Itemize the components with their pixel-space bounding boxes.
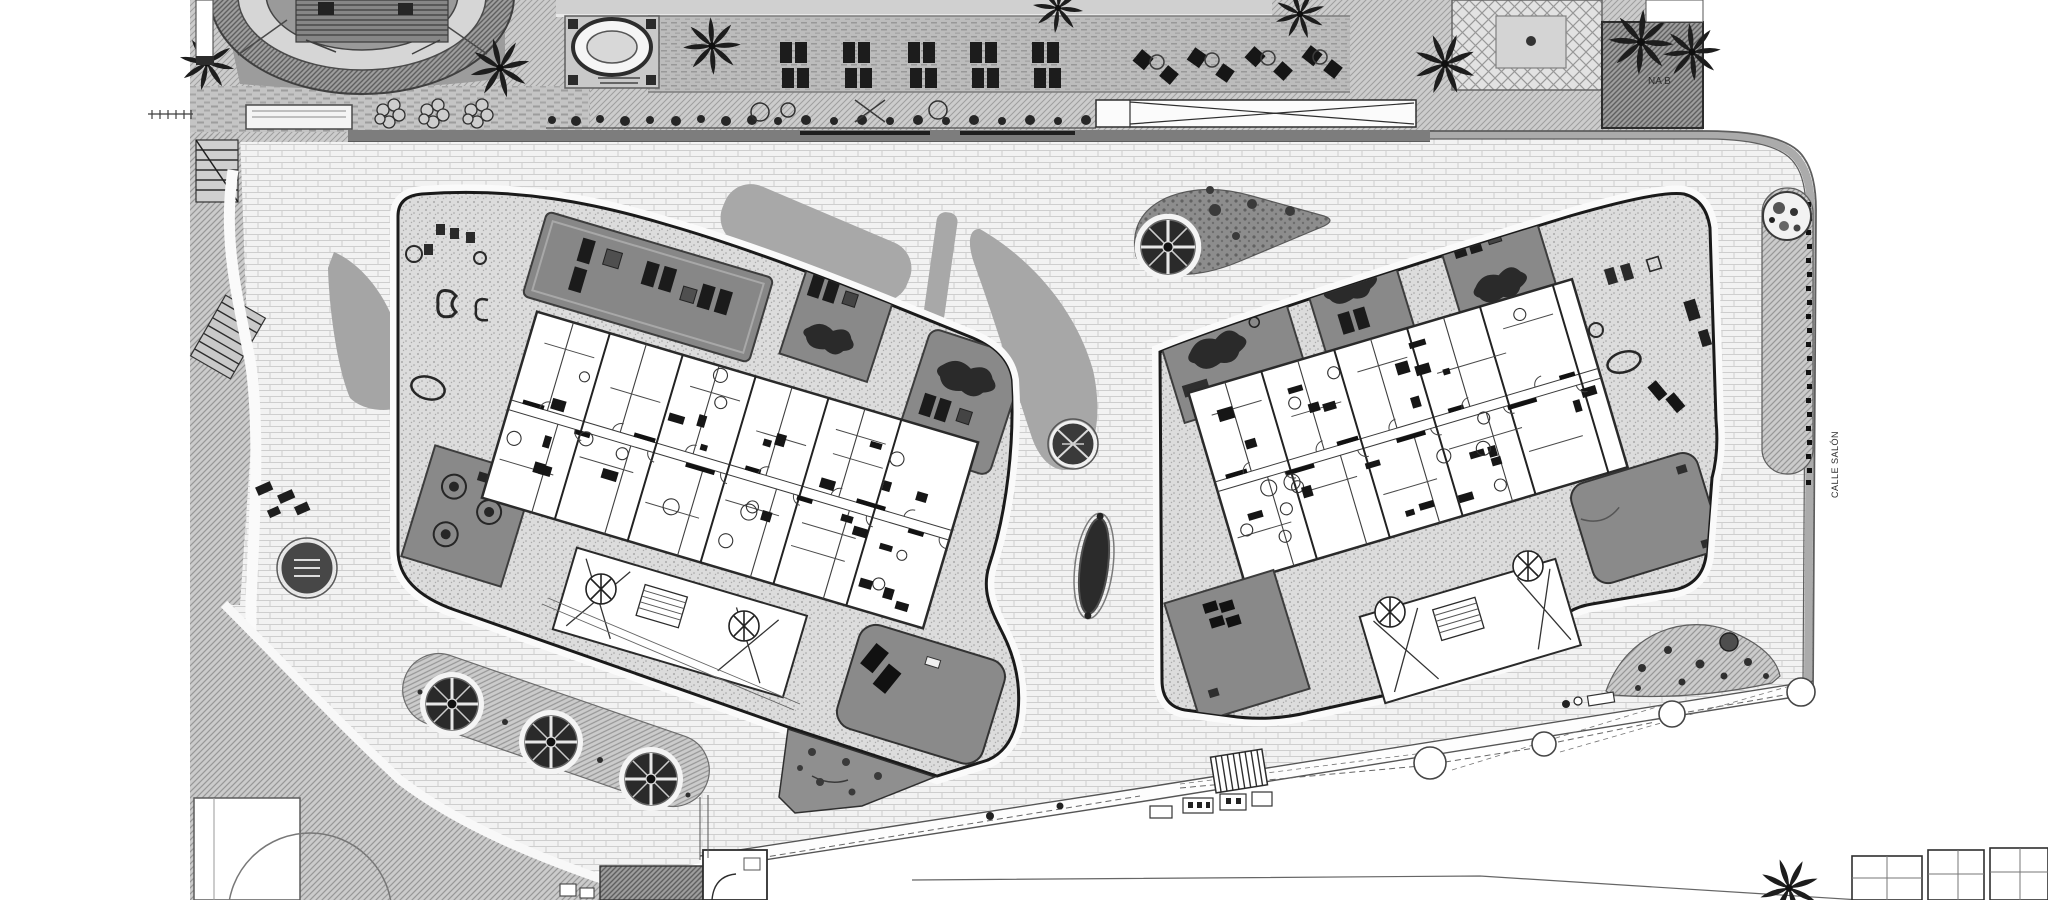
- svg-text:NA B: NA B: [1648, 76, 1671, 87]
- svg-text:CALLE SALÓN: CALLE SALÓN: [1830, 431, 1840, 498]
